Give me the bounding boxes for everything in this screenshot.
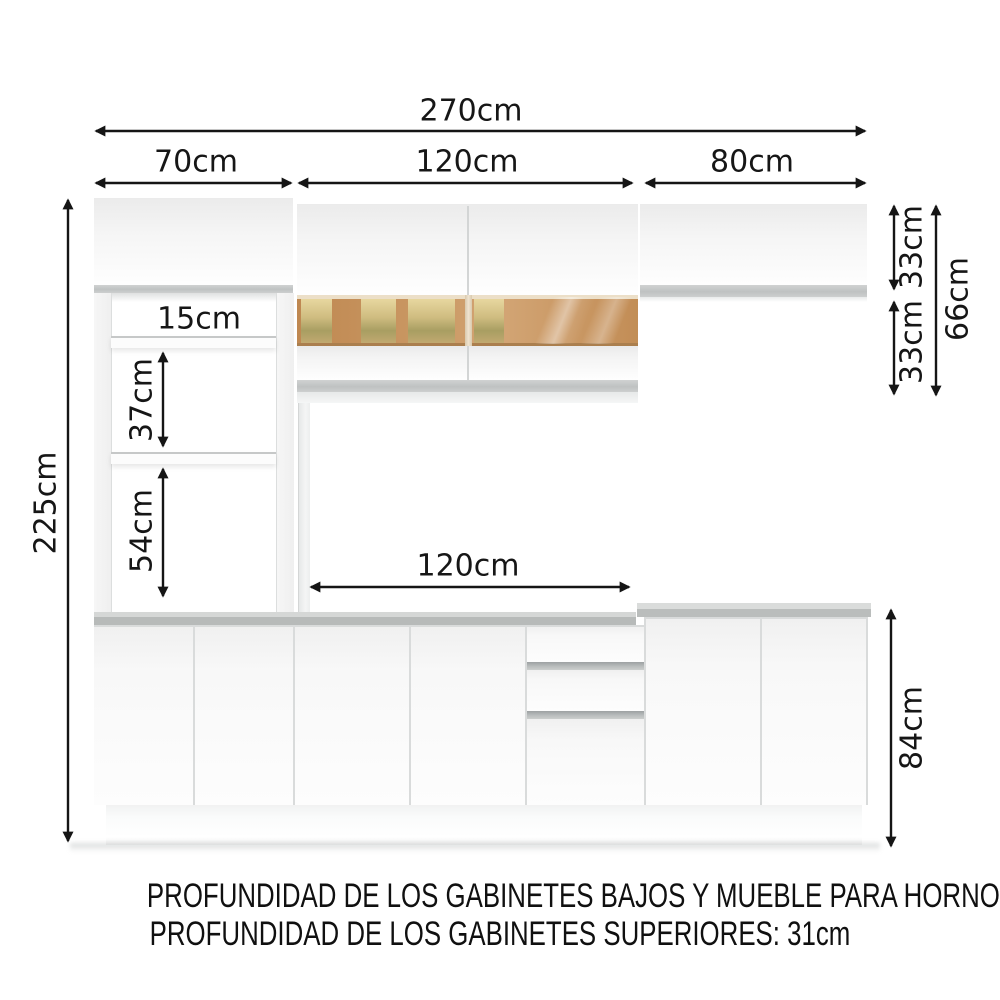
dim-label-middle-lower-half: 33cm xyxy=(895,300,930,384)
tall-cabinet-shelf-upper xyxy=(111,336,276,348)
dim-label-lower-shelf-gap: 54cm xyxy=(125,489,160,573)
glass-gloss-reflection xyxy=(505,297,638,344)
floor-shadow xyxy=(70,843,880,852)
glass-pane-4 xyxy=(474,299,504,343)
countertop-left-front xyxy=(94,617,636,625)
dim-label-upper-shelf-gap: 37cm xyxy=(125,358,160,442)
glass-pane-3 xyxy=(408,299,455,343)
tall-cabinet-left-wall xyxy=(94,293,112,612)
dim-label-base-height: 84cm xyxy=(895,686,930,770)
wall-cabinet-middle-door-gap-upper xyxy=(467,206,469,295)
footnote-depth-upper-text: PROFUNDIDAD DE LOS GABINETES SUPERIORES:… xyxy=(150,915,851,954)
dim-label-middle-total-height: 66cm xyxy=(941,257,976,341)
drawer-handle-bar-2 xyxy=(527,711,644,719)
dim-label-niche-gap: 15cm xyxy=(157,302,241,337)
drawer-unit-middle-front xyxy=(527,670,644,711)
tall-cabinet-shelf-lower xyxy=(111,452,276,464)
wall-cabinet-right-subedge xyxy=(640,297,867,302)
base-door-6 xyxy=(762,619,866,805)
wall-cabinet-middle-bottom-edge xyxy=(297,380,638,392)
tall-cabinet-right-wall xyxy=(276,293,294,612)
plinth xyxy=(106,805,862,845)
footnote-depth-upper: PROFUNDIDAD DE LOS GABINETES SUPERIORES:… xyxy=(0,915,1000,954)
dim-label-total-width: 270cm xyxy=(420,94,523,129)
base-door-2 xyxy=(195,627,293,805)
footnote-depth-base: PROFUNDIDAD DE LOS GABINETES BAJOS Y MUE… xyxy=(0,877,1000,916)
dim-label-left-section: 70cm xyxy=(154,145,238,180)
wall-cabinet-middle-glass-mullion xyxy=(465,295,472,346)
wall-cabinet-middle-door-gap-lower xyxy=(467,346,469,380)
base-door-4 xyxy=(411,627,525,805)
kitchen-dimension-diagram: 270cm 70cm 120cm 80cm 225cm 15cm 37cm 54… xyxy=(0,0,1000,1000)
footnote-depth-base-text: PROFUNDIDAD DE LOS GABINETES BAJOS Y MUE… xyxy=(147,877,1000,916)
dim-label-right-upper-height: 33cm xyxy=(895,205,930,289)
base-door-5 xyxy=(646,619,760,805)
tall-cabinet-door-edge xyxy=(94,285,293,293)
dim-label-countertop-span: 120cm xyxy=(417,549,520,584)
dim-label-right-section: 80cm xyxy=(710,145,794,180)
drawer-handle-bar-1 xyxy=(527,662,644,670)
dim-label-middle-section: 120cm xyxy=(416,145,519,180)
wall-cabinet-right-door xyxy=(640,204,867,285)
wall-cabinet-middle-subrail xyxy=(297,392,638,403)
base-door-1 xyxy=(94,627,193,805)
countertop-right-front xyxy=(637,609,871,617)
glass-pane-2 xyxy=(361,299,396,343)
base-door-3 xyxy=(295,627,409,805)
drawer-unit-top-front xyxy=(527,627,644,662)
tall-cabinet-upper-door xyxy=(94,198,293,285)
wall-cabinet-right-bottom-edge xyxy=(640,285,867,297)
dim-label-total-height: 225cm xyxy=(29,452,64,555)
drawer-unit-bottom-front xyxy=(527,719,644,805)
glass-pane-1 xyxy=(301,299,332,343)
